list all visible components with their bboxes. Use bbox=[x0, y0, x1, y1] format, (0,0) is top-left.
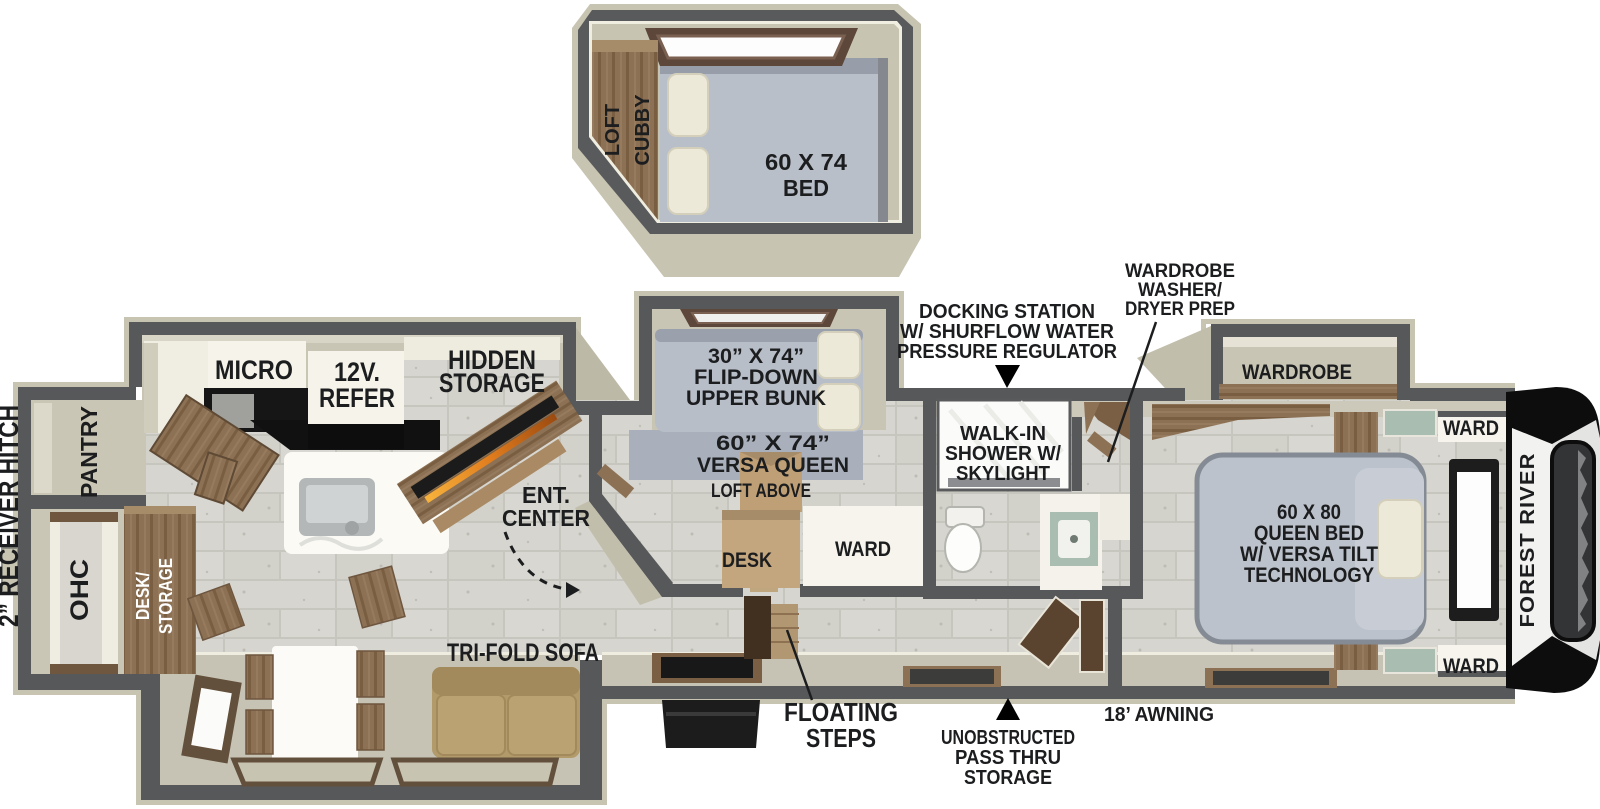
svg-text:STORAGE: STORAGE bbox=[156, 558, 176, 634]
svg-text:LOFT ABOVE: LOFT ABOVE bbox=[711, 481, 811, 502]
svg-text:2” RECEIVER HITCH: 2” RECEIVER HITCH bbox=[0, 405, 24, 627]
svg-text:PRESSURE REGULATOR: PRESSURE REGULATOR bbox=[897, 341, 1118, 363]
svg-text:MICRO: MICRO bbox=[215, 355, 293, 385]
svg-text:30” X 74”: 30” X 74” bbox=[708, 345, 804, 368]
svg-text:WALK-IN: WALK-IN bbox=[960, 423, 1046, 445]
svg-text:CUBBY: CUBBY bbox=[632, 94, 654, 166]
svg-text:TECHNOLOGY: TECHNOLOGY bbox=[1244, 564, 1374, 587]
svg-text:STEPS: STEPS bbox=[806, 723, 876, 753]
svg-text:REFER: REFER bbox=[319, 383, 395, 413]
svg-text:60” X 74”: 60” X 74” bbox=[716, 432, 830, 455]
svg-text:PASS THRU: PASS THRU bbox=[955, 747, 1061, 769]
svg-text:PANTRY: PANTRY bbox=[76, 406, 102, 498]
svg-text:WARDROBE: WARDROBE bbox=[1125, 261, 1235, 282]
svg-text:LOFT: LOFT bbox=[602, 104, 624, 156]
svg-text:DESK: DESK bbox=[722, 549, 772, 572]
svg-text:WARD: WARD bbox=[1443, 417, 1499, 440]
svg-text:DRYER PREP: DRYER PREP bbox=[1125, 299, 1235, 320]
svg-text:DOCKING STATION: DOCKING STATION bbox=[919, 301, 1095, 323]
svg-text:WASHER/: WASHER/ bbox=[1138, 280, 1223, 301]
svg-text:CENTER: CENTER bbox=[502, 505, 590, 531]
svg-text:18’ AWNING: 18’ AWNING bbox=[1104, 704, 1214, 726]
svg-text:FOREST RIVER: FOREST RIVER bbox=[1517, 453, 1539, 628]
svg-text:60 X 80: 60 X 80 bbox=[1277, 501, 1341, 524]
svg-text:SKYLIGHT: SKYLIGHT bbox=[956, 463, 1050, 485]
svg-text:BED: BED bbox=[783, 175, 829, 201]
svg-text:WARDROBE: WARDROBE bbox=[1242, 361, 1352, 384]
svg-text:OHC: OHC bbox=[66, 559, 94, 621]
svg-text:60 X 74: 60 X 74 bbox=[765, 149, 847, 175]
svg-text:STORAGE: STORAGE bbox=[964, 767, 1052, 789]
svg-text:W/ VERSA TILT: W/ VERSA TILT bbox=[1240, 543, 1378, 566]
svg-text:W/ SHURFLOW WATER: W/ SHURFLOW WATER bbox=[900, 321, 1115, 343]
svg-text:STORAGE: STORAGE bbox=[439, 368, 545, 398]
svg-text:VERSA QUEEN: VERSA QUEEN bbox=[697, 454, 849, 477]
svg-text:WARD: WARD bbox=[835, 538, 891, 561]
svg-text:UNOBSTRUCTED: UNOBSTRUCTED bbox=[941, 727, 1075, 749]
svg-text:WARD: WARD bbox=[1443, 655, 1499, 678]
svg-text:SHOWER W/: SHOWER W/ bbox=[945, 443, 1061, 465]
svg-text:DESK/: DESK/ bbox=[133, 572, 153, 620]
svg-text:FLIP-DOWN: FLIP-DOWN bbox=[694, 366, 818, 389]
svg-text:UPPER BUNK: UPPER BUNK bbox=[686, 387, 826, 410]
svg-text:QUEEN BED: QUEEN BED bbox=[1254, 522, 1364, 545]
svg-text:TRI-FOLD SOFA: TRI-FOLD SOFA bbox=[447, 639, 599, 667]
